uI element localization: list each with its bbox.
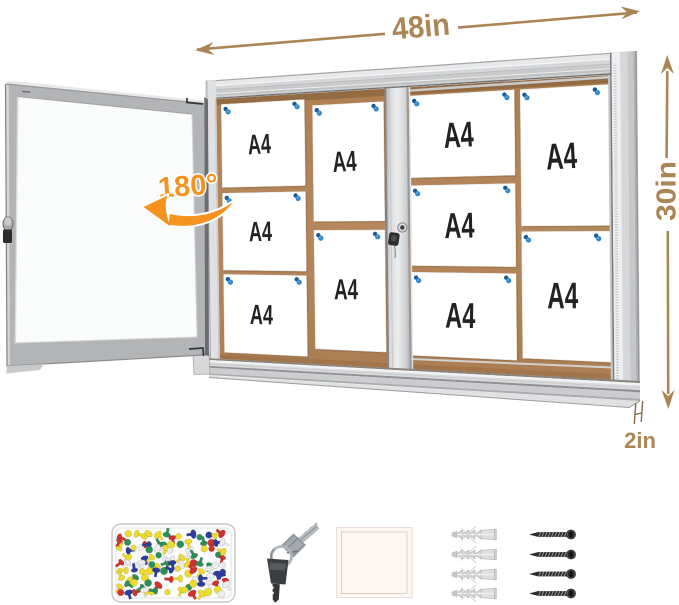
svg-text:A4: A4 — [332, 146, 358, 179]
svg-text:A4: A4 — [250, 299, 274, 330]
svg-text:A4: A4 — [442, 113, 474, 156]
svg-text:A4: A4 — [545, 135, 579, 178]
svg-text:A4: A4 — [444, 204, 475, 246]
svg-text:A4: A4 — [547, 275, 578, 316]
svg-text:2in: 2in — [624, 428, 656, 453]
svg-text:A4: A4 — [249, 216, 273, 247]
svg-text:48in: 48in — [390, 7, 451, 47]
svg-text:A4: A4 — [247, 128, 272, 160]
svg-text:A4: A4 — [334, 274, 358, 306]
svg-text:30in: 30in — [651, 161, 679, 221]
svg-text:A4: A4 — [445, 295, 476, 336]
